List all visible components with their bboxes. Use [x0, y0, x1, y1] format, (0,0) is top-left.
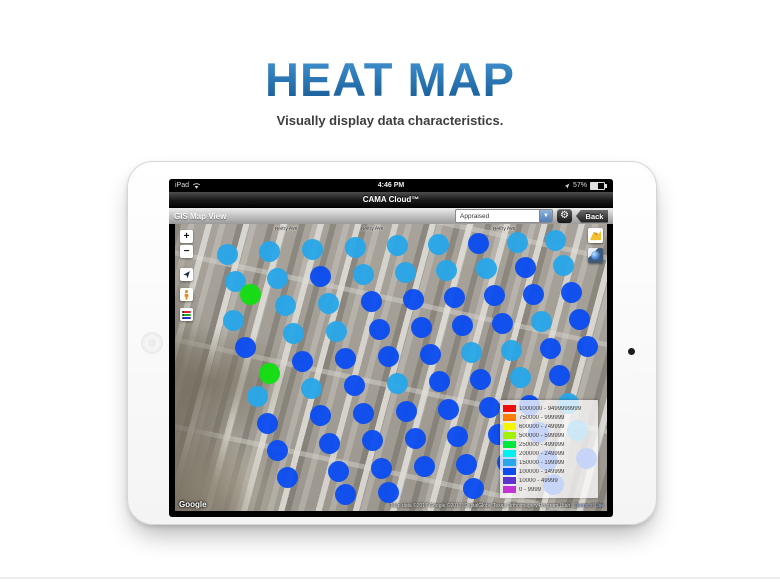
- zoom-out-button[interactable]: −: [180, 245, 193, 258]
- map-dot[interactable]: [569, 309, 590, 330]
- legend-row: 750000 - 999999: [503, 413, 595, 422]
- map-dot[interactable]: [403, 289, 424, 310]
- map-dot[interactable]: [523, 284, 544, 305]
- map-dot[interactable]: [428, 234, 449, 255]
- dropdown-selected-value: Appraised: [456, 213, 539, 220]
- map-dot[interactable]: [414, 456, 435, 477]
- map-dot[interactable]: [277, 467, 298, 488]
- map-dot[interactable]: [259, 241, 280, 262]
- legend-range-label: 600000 - 749999: [519, 424, 564, 430]
- map-dot[interactable]: [452, 315, 473, 336]
- map-dot[interactable]: [461, 342, 482, 363]
- page-title: HEAT MAP: [0, 52, 780, 107]
- back-button[interactable]: Back: [576, 210, 608, 223]
- map-type-controls: [588, 228, 603, 263]
- map-dot[interactable]: [378, 346, 399, 367]
- map-dot[interactable]: [318, 293, 339, 314]
- settings-button[interactable]: ⚙: [557, 209, 572, 223]
- map-dot[interactable]: [310, 405, 331, 426]
- legend-icon: [182, 311, 191, 319]
- map-dot[interactable]: [328, 461, 349, 482]
- map-dot[interactable]: [247, 386, 268, 407]
- home-button[interactable]: [628, 348, 635, 355]
- legend-swatch: [503, 468, 516, 475]
- map-dot[interactable]: [345, 237, 366, 258]
- street-label: Belfry Ave: [361, 226, 384, 233]
- gear-icon: ⚙: [560, 210, 569, 221]
- legend-swatch: [503, 441, 516, 448]
- map-dot[interactable]: [267, 440, 288, 461]
- map-dot[interactable]: [468, 233, 489, 254]
- map-dot[interactable]: [577, 336, 598, 357]
- map-dot[interactable]: [553, 255, 574, 276]
- app-title-bar: CAMA Cloud™: [169, 192, 613, 208]
- globe-icon: [591, 251, 600, 260]
- satellite-view-button[interactable]: [588, 248, 603, 263]
- map-dot[interactable]: [292, 351, 313, 372]
- legend-range-label: 200000 - 249999: [519, 451, 564, 457]
- map-dot[interactable]: [395, 262, 416, 283]
- map-dot[interactable]: [223, 310, 244, 331]
- map-dot[interactable]: [492, 313, 513, 334]
- map-dot[interactable]: [405, 428, 426, 449]
- map-controls: + −: [180, 230, 193, 321]
- map-attribution: Map data ©2017 Google ©2017, DigitalGlob…: [391, 503, 604, 509]
- legend-range-label: 500000 - 599999: [519, 433, 564, 439]
- clock: 4:46 PM: [169, 182, 613, 189]
- toolbar: GIS Map View Appraised ▼ ⚙ Back: [169, 208, 613, 224]
- app-title: CAMA Cloud™: [363, 195, 420, 204]
- map-dot[interactable]: [507, 232, 528, 253]
- map-dot[interactable]: [515, 257, 536, 278]
- map-dot[interactable]: [456, 454, 477, 475]
- ipad-device: iPad 4:46 PM 57% CAMA Cloud™: [127, 161, 657, 525]
- map-dot[interactable]: [549, 365, 570, 386]
- map-dot[interactable]: [259, 363, 280, 384]
- legend-swatch: [503, 486, 516, 493]
- legend-row: 600000 - 749999: [503, 422, 595, 431]
- street-label: Belfry Ave: [275, 226, 298, 233]
- copyright-text: Map data ©2017 Google ©2017, DigitalGlob…: [391, 503, 570, 509]
- screen: iPad 4:46 PM 57% CAMA Cloud™: [169, 179, 613, 517]
- map-dot[interactable]: [275, 295, 296, 316]
- map-dot[interactable]: [429, 371, 450, 392]
- chevron-down-icon[interactable]: ▼: [539, 210, 552, 222]
- my-location-button[interactable]: [180, 268, 193, 281]
- map-dot[interactable]: [510, 367, 531, 388]
- battery-icon: [590, 182, 605, 190]
- legend-range-label: 750000 - 999999: [519, 415, 564, 421]
- legend-swatch: [503, 477, 516, 484]
- map-dot[interactable]: [476, 258, 497, 279]
- map-dot[interactable]: [501, 340, 522, 361]
- map-dot[interactable]: [335, 348, 356, 369]
- map-dot[interactable]: [387, 235, 408, 256]
- page: HEAT MAP Visually display data character…: [0, 0, 780, 585]
- legend-row: 150000 - 199999: [503, 458, 595, 467]
- legend-toggle-button[interactable]: [180, 308, 193, 321]
- map-dot[interactable]: [302, 239, 323, 260]
- legend-range-label: 150000 - 199999: [519, 460, 564, 466]
- map-view[interactable]: Belfry AveBelfry AveBelfry Ave + −: [175, 224, 607, 511]
- legend-row: 500000 - 599999: [503, 431, 595, 440]
- legend-swatch: [503, 423, 516, 430]
- map-dot[interactable]: [438, 399, 459, 420]
- map-dot[interactable]: [353, 403, 374, 424]
- map-dot[interactable]: [378, 482, 399, 503]
- legend-row: 0 - 9999: [503, 485, 595, 494]
- map-dot[interactable]: [479, 397, 500, 418]
- map-dot[interactable]: [335, 484, 356, 505]
- legend-range-label: 0 - 9999: [519, 487, 541, 493]
- map-dot[interactable]: [396, 401, 417, 422]
- map-dot[interactable]: [545, 230, 566, 251]
- legend-range-label: 1000000 - 9499999999: [519, 406, 581, 412]
- map-dot[interactable]: [257, 413, 278, 434]
- legend-row: 100000 - 149999: [503, 467, 595, 476]
- map-dot[interactable]: [411, 317, 432, 338]
- map-dot[interactable]: [310, 266, 331, 287]
- legend-row: 10000 - 49999: [503, 476, 595, 485]
- map-dot[interactable]: [326, 321, 347, 342]
- map-dot[interactable]: [540, 338, 561, 359]
- street-view-pegman-button[interactable]: [180, 288, 193, 301]
- value-legend: 1000000 - 9499999999750000 - 99999960000…: [500, 400, 598, 498]
- map-dot[interactable]: [436, 260, 457, 281]
- folded-map-icon: [589, 230, 602, 241]
- map-dot[interactable]: [361, 291, 382, 312]
- map-dot[interactable]: [447, 426, 468, 447]
- legend-row: 1000000 - 9499999999: [503, 404, 595, 413]
- map-dot[interactable]: [217, 244, 238, 265]
- navigation-arrow-icon: [182, 270, 191, 279]
- map-dot[interactable]: [444, 287, 465, 308]
- map-dot[interactable]: [283, 323, 304, 344]
- legend-range-label: 10000 - 49999: [519, 478, 558, 484]
- map-dot[interactable]: [353, 264, 374, 285]
- legend-rows: 1000000 - 9499999999750000 - 99999960000…: [503, 404, 595, 494]
- map-dot[interactable]: [301, 378, 322, 399]
- map-dot[interactable]: [362, 430, 383, 451]
- legend-swatch: [503, 405, 516, 412]
- street-label: Belfry Ave: [493, 226, 516, 233]
- map-dot[interactable]: [420, 344, 441, 365]
- map-dot[interactable]: [561, 282, 582, 303]
- map-dot[interactable]: [531, 311, 552, 332]
- map-dot[interactable]: [369, 319, 390, 340]
- legend-swatch: [503, 414, 516, 421]
- legend-swatch: [503, 450, 516, 457]
- front-camera: [141, 332, 163, 354]
- legend-row: 200000 - 249999: [503, 449, 595, 458]
- back-label: Back: [586, 212, 604, 221]
- pegman-icon: [183, 290, 190, 300]
- map-dot[interactable]: [235, 337, 256, 358]
- legend-range-label: 100000 - 149999: [519, 469, 564, 475]
- google-logo: Google: [179, 500, 207, 509]
- map-dot[interactable]: [484, 285, 505, 306]
- terms-of-use-link[interactable]: Terms of Use: [575, 503, 604, 509]
- legend-swatch: [503, 432, 516, 439]
- view-title: GIS Map View: [174, 212, 451, 221]
- map-dot[interactable]: [344, 375, 365, 396]
- page-subtitle: Visually display data characteristics.: [0, 113, 780, 128]
- status-bar: iPad 4:46 PM 57%: [169, 179, 613, 192]
- map-dot[interactable]: [371, 458, 392, 479]
- map-dot[interactable]: [463, 478, 484, 499]
- map-dot[interactable]: [240, 284, 261, 305]
- map-dot[interactable]: [387, 373, 408, 394]
- legend-range-label: 250000 - 499999: [519, 442, 564, 448]
- map-view-button[interactable]: [588, 228, 603, 243]
- value-type-dropdown[interactable]: Appraised ▼: [455, 209, 553, 223]
- map-dot[interactable]: [470, 369, 491, 390]
- legend-row: 250000 - 499999: [503, 440, 595, 449]
- legend-swatch: [503, 459, 516, 466]
- zoom-in-button[interactable]: +: [180, 230, 193, 243]
- map-dot[interactable]: [267, 268, 288, 289]
- footer-divider: [0, 577, 780, 579]
- map-dot[interactable]: [319, 433, 340, 454]
